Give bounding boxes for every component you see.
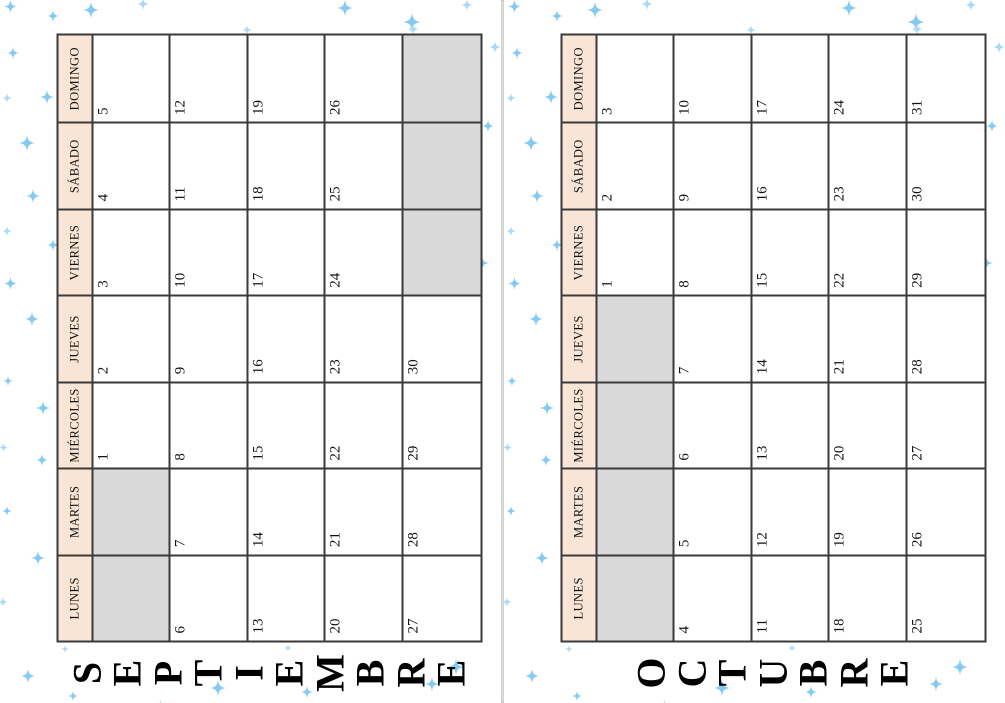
day-number: 17 xyxy=(752,99,771,121)
day-number: 24 xyxy=(830,99,849,121)
day-cell: 28 xyxy=(403,467,480,553)
day-number: 22 xyxy=(326,445,345,467)
day-header-cell: MIÉRCOLES xyxy=(563,381,598,467)
day-cell: 21 xyxy=(830,294,907,380)
day-cell: 19 xyxy=(830,467,907,553)
day-cell: 21 xyxy=(326,467,403,553)
month-title-september: SEPTIEMBRE xyxy=(57,642,483,703)
day-number: 31 xyxy=(907,99,926,121)
day-number: 22 xyxy=(830,272,849,294)
day-number: 20 xyxy=(830,445,849,467)
day-number: 9 xyxy=(171,366,190,381)
day-number: 18 xyxy=(248,186,267,208)
day-number: 1 xyxy=(94,453,113,468)
month-title-letter: C xyxy=(672,658,713,687)
day-number: 25 xyxy=(907,618,926,640)
day-number: 28 xyxy=(403,532,422,554)
day-cell: 29 xyxy=(907,208,984,294)
blank-day-cell xyxy=(403,121,480,207)
blank-day-cell xyxy=(94,467,171,553)
day-cell: 26 xyxy=(907,467,984,553)
day-header-cell: SÁBADO xyxy=(59,121,94,207)
day-cell: 27 xyxy=(907,381,984,467)
day-header-cell: SÁBADO xyxy=(563,121,598,207)
day-cell: 26 xyxy=(326,35,403,121)
day-cell: 6 xyxy=(675,381,752,467)
month-title-letter: E xyxy=(270,659,311,686)
day-number: 7 xyxy=(171,539,190,554)
rotated-page-content: SEPTIEMBRE LUNESMARTESMIÉRCOLESJUEVESVIE… xyxy=(0,0,501,703)
day-cell: 20 xyxy=(830,381,907,467)
day-cell: 31 xyxy=(907,35,984,121)
day-cell: 15 xyxy=(752,208,829,294)
month-title-letter: B xyxy=(794,659,835,686)
day-header-label: JUEVES xyxy=(68,315,83,363)
day-cell: 10 xyxy=(171,208,248,294)
day-cell: 4 xyxy=(94,121,171,207)
blank-day-cell xyxy=(598,381,675,467)
day-number: 14 xyxy=(752,359,771,381)
day-cell: 29 xyxy=(403,381,480,467)
day-number: 1 xyxy=(598,280,617,295)
day-number: 11 xyxy=(752,619,771,640)
day-number: 16 xyxy=(752,186,771,208)
day-number: 9 xyxy=(675,193,694,208)
day-header-cell: DOMINGO xyxy=(59,35,94,121)
day-header-cell: DOMINGO xyxy=(563,35,598,121)
day-header-label: DOMINGO xyxy=(572,47,587,110)
day-cell: 4 xyxy=(675,554,752,640)
day-cell: 15 xyxy=(248,381,325,467)
month-title-letter: U xyxy=(753,658,794,687)
day-cell: 12 xyxy=(752,467,829,553)
day-header-cell: JUEVES xyxy=(563,294,598,380)
day-number: 19 xyxy=(830,532,849,554)
blank-day-cell xyxy=(598,294,675,380)
day-cell: 3 xyxy=(598,35,675,121)
day-number: 17 xyxy=(248,272,267,294)
day-header-label: MIÉRCOLES xyxy=(68,388,83,462)
day-cell: 24 xyxy=(830,35,907,121)
day-cell: 1 xyxy=(598,208,675,294)
day-cell: 17 xyxy=(248,208,325,294)
day-number: 5 xyxy=(675,539,694,554)
day-header-label: VIERNES xyxy=(572,224,587,280)
day-number: 2 xyxy=(598,193,617,208)
day-cell: 16 xyxy=(248,294,325,380)
day-cell: 19 xyxy=(248,35,325,121)
day-number: 16 xyxy=(248,359,267,381)
day-cell: 13 xyxy=(248,554,325,640)
day-number: 28 xyxy=(907,359,926,381)
day-header-cell: LUNES xyxy=(59,554,94,640)
day-cell: 5 xyxy=(675,467,752,553)
day-cell: 23 xyxy=(326,294,403,380)
day-header-label: DOMINGO xyxy=(68,47,83,110)
day-number: 29 xyxy=(907,272,926,294)
day-header-cell: MARTES xyxy=(563,467,598,553)
month-title-letter: E xyxy=(875,659,916,686)
day-number: 2 xyxy=(94,366,113,381)
day-number: 3 xyxy=(598,107,617,122)
day-number: 7 xyxy=(675,366,694,381)
day-cell: 18 xyxy=(248,121,325,207)
day-cell: 22 xyxy=(326,381,403,467)
day-number: 18 xyxy=(830,618,849,640)
page-october: OCTUBRE LUNESMARTESMIÉRCOLESJUEVESVIERNE… xyxy=(504,0,1005,703)
day-header-label: MIÉRCOLES xyxy=(572,388,587,462)
day-header-cell: JUEVES xyxy=(59,294,94,380)
day-number: 10 xyxy=(675,99,694,121)
day-number: 6 xyxy=(675,453,694,468)
day-cell: 16 xyxy=(752,121,829,207)
day-cell: 28 xyxy=(907,294,984,380)
day-number: 24 xyxy=(326,272,345,294)
day-number: 26 xyxy=(907,532,926,554)
day-cell: 25 xyxy=(907,554,984,640)
blank-day-cell xyxy=(403,208,480,294)
month-title-letter: E xyxy=(108,659,149,686)
blank-day-cell xyxy=(94,554,171,640)
day-cell: 13 xyxy=(752,381,829,467)
day-number: 15 xyxy=(752,272,771,294)
day-number: 30 xyxy=(907,186,926,208)
calendar-table-september: LUNESMARTESMIÉRCOLESJUEVESVIERNESSÁBADOD… xyxy=(57,33,483,642)
day-number: 23 xyxy=(326,359,345,381)
day-number: 30 xyxy=(403,359,422,381)
day-number: 11 xyxy=(171,186,190,207)
day-header-label: LUNES xyxy=(68,577,83,619)
day-number: 10 xyxy=(171,272,190,294)
day-cell: 24 xyxy=(326,208,403,294)
day-cell: 5 xyxy=(94,35,171,121)
month-title-letter: O xyxy=(632,657,673,688)
day-cell: 9 xyxy=(171,294,248,380)
month-title-letter: T xyxy=(713,659,754,686)
day-cell: 6 xyxy=(171,554,248,640)
day-number: 21 xyxy=(830,359,849,381)
month-title-letter: E xyxy=(432,659,473,686)
day-header-label: LUNES xyxy=(572,577,587,619)
page-september: SEPTIEMBRE LUNESMARTESMIÉRCOLESJUEVESVIE… xyxy=(0,0,501,703)
day-header-label: SÁBADO xyxy=(572,139,587,193)
day-header-cell: LUNES xyxy=(563,554,598,640)
calendar-spread: SEPTIEMBRE LUNESMARTESMIÉRCOLESJUEVESVIE… xyxy=(0,0,1005,703)
calendar-table-october: LUNESMARTESMIÉRCOLESJUEVESVIERNESSÁBADOD… xyxy=(561,33,987,642)
month-title-letter: R xyxy=(834,658,875,687)
month-title-letter: M xyxy=(310,654,351,692)
day-cell: 3 xyxy=(94,208,171,294)
day-header-cell: MARTES xyxy=(59,467,94,553)
day-number: 27 xyxy=(403,618,422,640)
day-cell: 8 xyxy=(171,381,248,467)
day-number: 29 xyxy=(403,445,422,467)
day-number: 4 xyxy=(675,626,694,641)
day-number: 14 xyxy=(248,532,267,554)
day-cell: 9 xyxy=(675,121,752,207)
day-number: 5 xyxy=(94,107,113,122)
day-header-cell: MIÉRCOLES xyxy=(59,381,94,467)
day-cell: 7 xyxy=(675,294,752,380)
day-cell: 14 xyxy=(248,467,325,553)
day-header-label: MARTES xyxy=(68,485,83,537)
day-number: 6 xyxy=(171,626,190,641)
day-cell: 8 xyxy=(675,208,752,294)
month-title-letter: P xyxy=(148,660,189,684)
day-cell: 27 xyxy=(403,554,480,640)
day-number: 19 xyxy=(248,99,267,121)
blank-day-cell xyxy=(403,35,480,121)
day-number: 27 xyxy=(907,445,926,467)
day-cell: 10 xyxy=(675,35,752,121)
day-number: 25 xyxy=(326,186,345,208)
day-cell: 22 xyxy=(830,208,907,294)
day-number: 15 xyxy=(248,445,267,467)
day-cell: 12 xyxy=(171,35,248,121)
day-cell: 2 xyxy=(94,294,171,380)
day-number: 8 xyxy=(171,453,190,468)
blank-day-cell xyxy=(598,467,675,553)
month-title-october: OCTUBRE xyxy=(561,642,987,703)
rotated-page-content: OCTUBRE LUNESMARTESMIÉRCOLESJUEVESVIERNE… xyxy=(504,0,1005,703)
day-number: 23 xyxy=(830,186,849,208)
day-cell: 18 xyxy=(830,554,907,640)
day-cell: 7 xyxy=(171,467,248,553)
day-number: 13 xyxy=(248,618,267,640)
day-number: 8 xyxy=(675,280,694,295)
day-cell: 1 xyxy=(94,381,171,467)
day-number: 20 xyxy=(326,618,345,640)
day-number: 12 xyxy=(752,532,771,554)
month-title-letter: B xyxy=(351,659,392,686)
blank-day-cell xyxy=(598,554,675,640)
day-cell: 25 xyxy=(326,121,403,207)
day-cell: 30 xyxy=(403,294,480,380)
month-title-letter: T xyxy=(189,659,230,686)
day-cell: 17 xyxy=(752,35,829,121)
month-title-letter: S xyxy=(67,661,108,683)
day-header-label: VIERNES xyxy=(68,224,83,280)
day-cell: 11 xyxy=(171,121,248,207)
day-cell: 20 xyxy=(326,554,403,640)
day-cell: 23 xyxy=(830,121,907,207)
day-number: 12 xyxy=(171,99,190,121)
day-header-cell: VIERNES xyxy=(59,208,94,294)
day-header-label: MARTES xyxy=(572,485,587,537)
day-number: 13 xyxy=(752,445,771,467)
day-number: 3 xyxy=(94,280,113,295)
day-cell: 11 xyxy=(752,554,829,640)
month-title-letter: I xyxy=(229,665,270,681)
day-number: 4 xyxy=(94,193,113,208)
day-header-label: SÁBADO xyxy=(68,139,83,193)
day-header-cell: VIERNES xyxy=(563,208,598,294)
day-number: 26 xyxy=(326,99,345,121)
day-cell: 14 xyxy=(752,294,829,380)
day-cell: 2 xyxy=(598,121,675,207)
day-number: 21 xyxy=(326,532,345,554)
day-header-label: JUEVES xyxy=(572,315,587,363)
day-cell: 30 xyxy=(907,121,984,207)
month-title-letter: R xyxy=(391,658,432,687)
